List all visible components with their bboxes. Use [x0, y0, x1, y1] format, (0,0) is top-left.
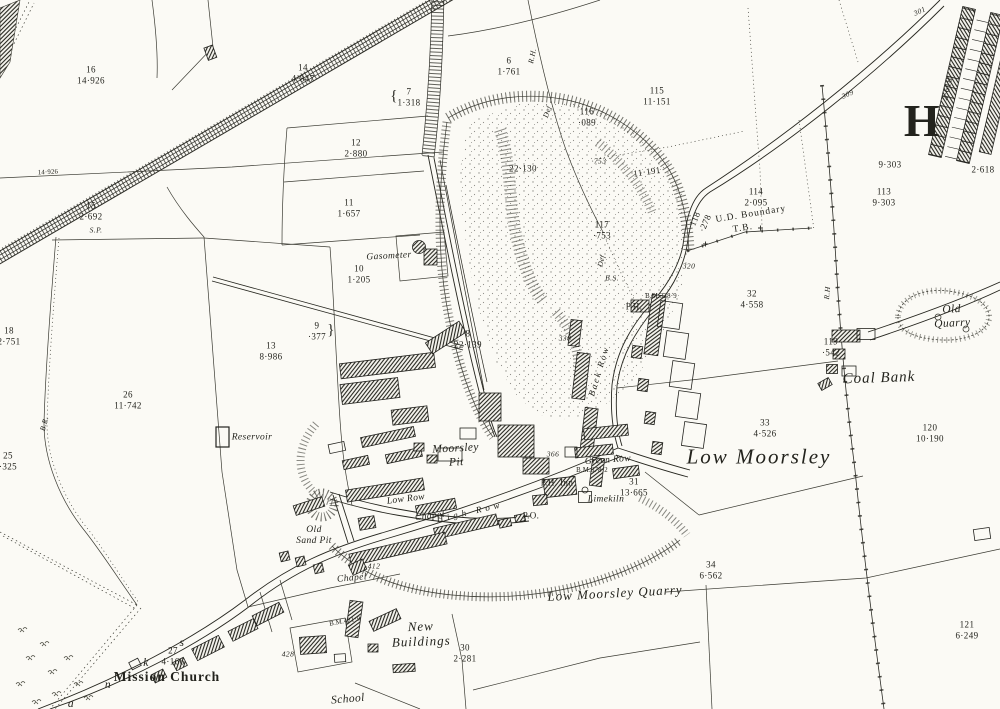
tick-boundaries: [687, 85, 884, 709]
railway: [0, 0, 458, 267]
marsh-tufts: [16, 628, 93, 705]
terrace-rows: [929, 6, 1000, 164]
old-quarry-outline: [898, 290, 989, 340]
map-sheet: 16 14·926 14 4·847 7 1·318 { 6 1·761 115…: [0, 0, 1000, 709]
map-linework: [0, 0, 1000, 709]
